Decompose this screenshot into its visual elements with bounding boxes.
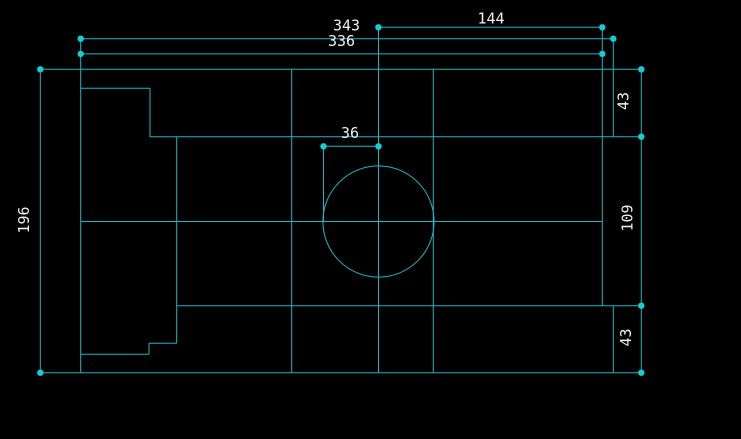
dimension-endpoint-dot bbox=[78, 36, 84, 42]
dimension-endpoint-dot bbox=[638, 370, 644, 376]
dimension-endpoint-dot bbox=[599, 51, 605, 57]
dimension-label-43-5: 43 bbox=[615, 92, 633, 110]
dimension-endpoint-dot bbox=[610, 36, 616, 42]
dimension-endpoint-dot bbox=[37, 66, 43, 72]
cad-viewport: 343336144361964310943 bbox=[0, 0, 741, 439]
dimension-endpoint-dot bbox=[638, 303, 644, 309]
dimension-endpoint-dot bbox=[638, 134, 644, 140]
dimension-label-36-3: 36 bbox=[341, 124, 359, 142]
dimension-endpoint-dot bbox=[37, 370, 43, 376]
dimension-endpoint-dot bbox=[599, 24, 605, 30]
dimension-endpoint-dot bbox=[638, 66, 644, 72]
dimension-endpoint-dot bbox=[375, 24, 381, 30]
dimension-label-43-7: 43 bbox=[617, 328, 635, 346]
dimension-endpoint-dot bbox=[375, 143, 381, 149]
dimension-label-109-6: 109 bbox=[619, 204, 637, 231]
cad-drawing-canvas: 343336144361964310943 bbox=[0, 0, 741, 439]
dimension-endpoint-dot bbox=[320, 143, 326, 149]
dimension-label-336-1: 336 bbox=[328, 32, 355, 50]
dimension-label-144-2: 144 bbox=[477, 10, 504, 28]
dimension-label-196-4: 196 bbox=[15, 206, 33, 233]
dimension-endpoint-dot bbox=[78, 51, 84, 57]
